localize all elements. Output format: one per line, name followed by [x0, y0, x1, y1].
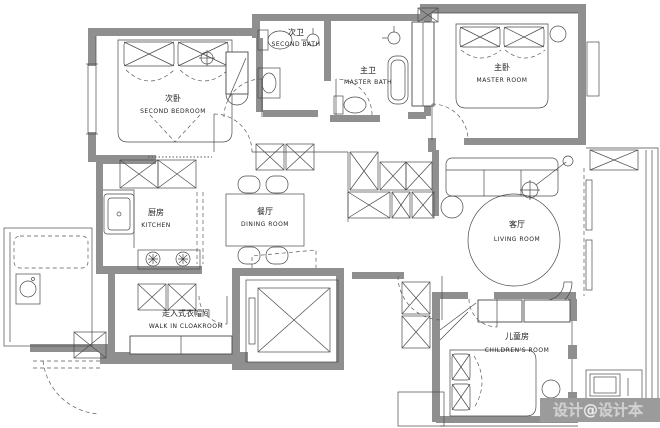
dining-room: 餐厅 DINING ROOM: [226, 176, 304, 264]
kitchen-label-en: KITCHEN: [141, 222, 171, 229]
living-room-label-cn: 客厅: [509, 219, 525, 229]
left-balcony: [14, 236, 103, 414]
master-room-door: [432, 104, 468, 140]
sofa-icon: [441, 158, 558, 218]
second-bath: 次卫 SECOND BATH: [258, 27, 320, 98]
master-room-label-en: MASTER ROOM: [477, 77, 528, 84]
stool-icon: [542, 380, 560, 398]
desk-computer-icon: [586, 370, 642, 400]
balcony-door-arc: [43, 361, 99, 414]
drying-rack-icon: [587, 42, 599, 96]
master-room-label-cn: 主卧: [494, 62, 510, 72]
watermark-text: 设计@设计本: [553, 401, 643, 419]
wardrobe-rail-icon: [478, 300, 522, 322]
wardrobe-rail-icon: [524, 300, 570, 322]
kitchen-label-cn: 厨房: [148, 207, 164, 217]
dining-table-icon: [226, 176, 304, 264]
bedside-table-icon: [550, 26, 566, 42]
floor-plan-drawing: 次卧 SECOND BEDROOM 次卫 SECOND BATH: [0, 0, 660, 428]
master-bath-label-cn: 主卫: [360, 65, 376, 75]
second-bath-label-cn: 次卫: [288, 27, 304, 37]
second-bath-label-en: SECOND BATH: [272, 41, 321, 48]
living-room-label-en: LIVING ROOM: [494, 236, 540, 243]
childrens-room-label-en: CHILDREN'S ROOM: [485, 347, 550, 354]
master-bath: 主卫 MASTER BATH: [334, 26, 408, 114]
shower-icon: [382, 26, 400, 44]
master-bath-label-en: MASTER BATH: [344, 79, 392, 86]
cabinet-icon: [120, 160, 196, 188]
kitchen-sink-icon: [104, 194, 134, 234]
elevator-shaft: [246, 250, 338, 362]
toilet-icon: [334, 96, 366, 114]
ceiling-light-icon: [199, 50, 215, 66]
drying-area: [14, 236, 88, 268]
dining-room-label-en: DINING ROOM: [241, 221, 289, 228]
living-room: 客厅 LIVING ROOM: [441, 156, 573, 308]
master-room: 主卧 MASTER ROOM: [456, 24, 566, 108]
bed-icon: [118, 40, 232, 142]
second-bedroom-label-cn: 次卧: [165, 93, 181, 103]
watermark: 设计@设计本: [540, 398, 660, 422]
floor-plan-page: 次卧 SECOND BEDROOM 次卫 SECOND BATH: [0, 0, 660, 428]
dining-room-label-cn: 餐厅: [257, 207, 273, 216]
second-bedroom: 次卧 SECOND BEDROOM: [118, 40, 232, 157]
cloakroom-label-en: WALK IN CLOAKROOM: [149, 323, 223, 330]
ceiling-light-icon: [520, 156, 573, 200]
second-bedroom-label-en: SECOND BEDROOM: [140, 108, 206, 115]
washing-machine-icon: [16, 274, 40, 304]
bed-icon: [450, 350, 536, 416]
second-bedroom-door: [214, 114, 252, 152]
right-balcony: [584, 42, 638, 296]
childrens-room-label-cn: 儿童房: [505, 331, 529, 341]
kitchen: 厨房 KITCHEN: [103, 160, 200, 269]
